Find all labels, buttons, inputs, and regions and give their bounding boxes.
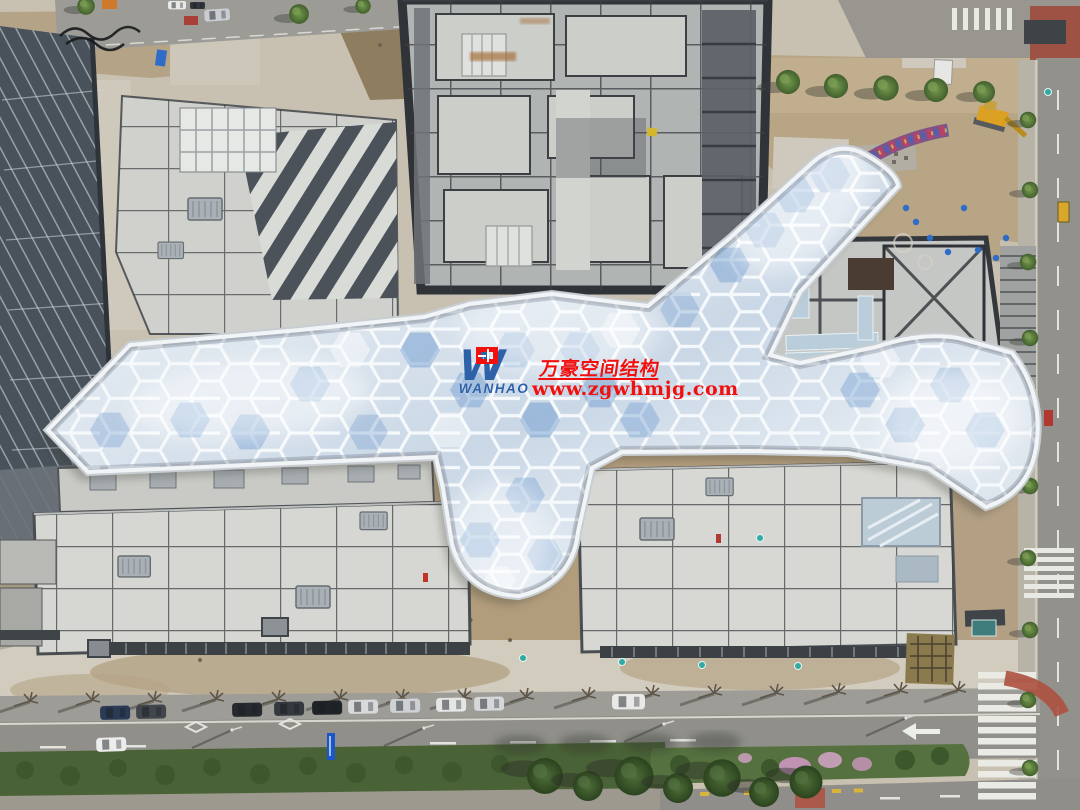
hvac-unit <box>296 586 330 608</box>
car <box>274 701 304 716</box>
site-booth <box>262 618 288 636</box>
car <box>312 700 342 715</box>
aerial-photo: W WANHAO 万豪空间结构 www.zgwhmjg.com <box>0 0 1080 810</box>
moving-car <box>96 737 126 752</box>
red-container <box>184 16 198 25</box>
red-car <box>1044 410 1053 426</box>
red-detail <box>423 573 428 582</box>
car <box>100 705 130 720</box>
hvac-unit <box>706 478 733 496</box>
roof-bottom-left <box>34 458 470 655</box>
car <box>168 1 186 9</box>
yellow-equipment <box>646 127 657 137</box>
hvac-unit <box>360 512 387 530</box>
roof-bottom-right <box>578 462 956 658</box>
hvac-unit <box>640 518 674 540</box>
roadside-banner <box>327 733 335 760</box>
car <box>348 699 378 714</box>
material-rack <box>905 633 955 685</box>
car <box>474 696 504 711</box>
car <box>204 8 230 22</box>
car <box>436 697 466 712</box>
tower-under-construction <box>402 0 768 290</box>
site-booth <box>88 640 110 657</box>
orange-vehicle <box>102 0 117 9</box>
hvac-unit <box>118 556 150 577</box>
car <box>232 702 262 717</box>
roof-top-left <box>116 96 398 334</box>
site-entrance-tent <box>1024 20 1066 44</box>
scene-canvas <box>0 0 1080 810</box>
hvac-unit <box>188 198 222 220</box>
car <box>390 698 420 713</box>
white-van <box>612 694 645 709</box>
hvac-unit <box>158 242 184 259</box>
yellow-truck <box>1058 202 1069 222</box>
car <box>190 2 205 9</box>
dark-roof-block <box>848 258 894 290</box>
car <box>136 704 166 719</box>
rust-stain <box>470 52 516 61</box>
skylight-band <box>96 642 470 655</box>
